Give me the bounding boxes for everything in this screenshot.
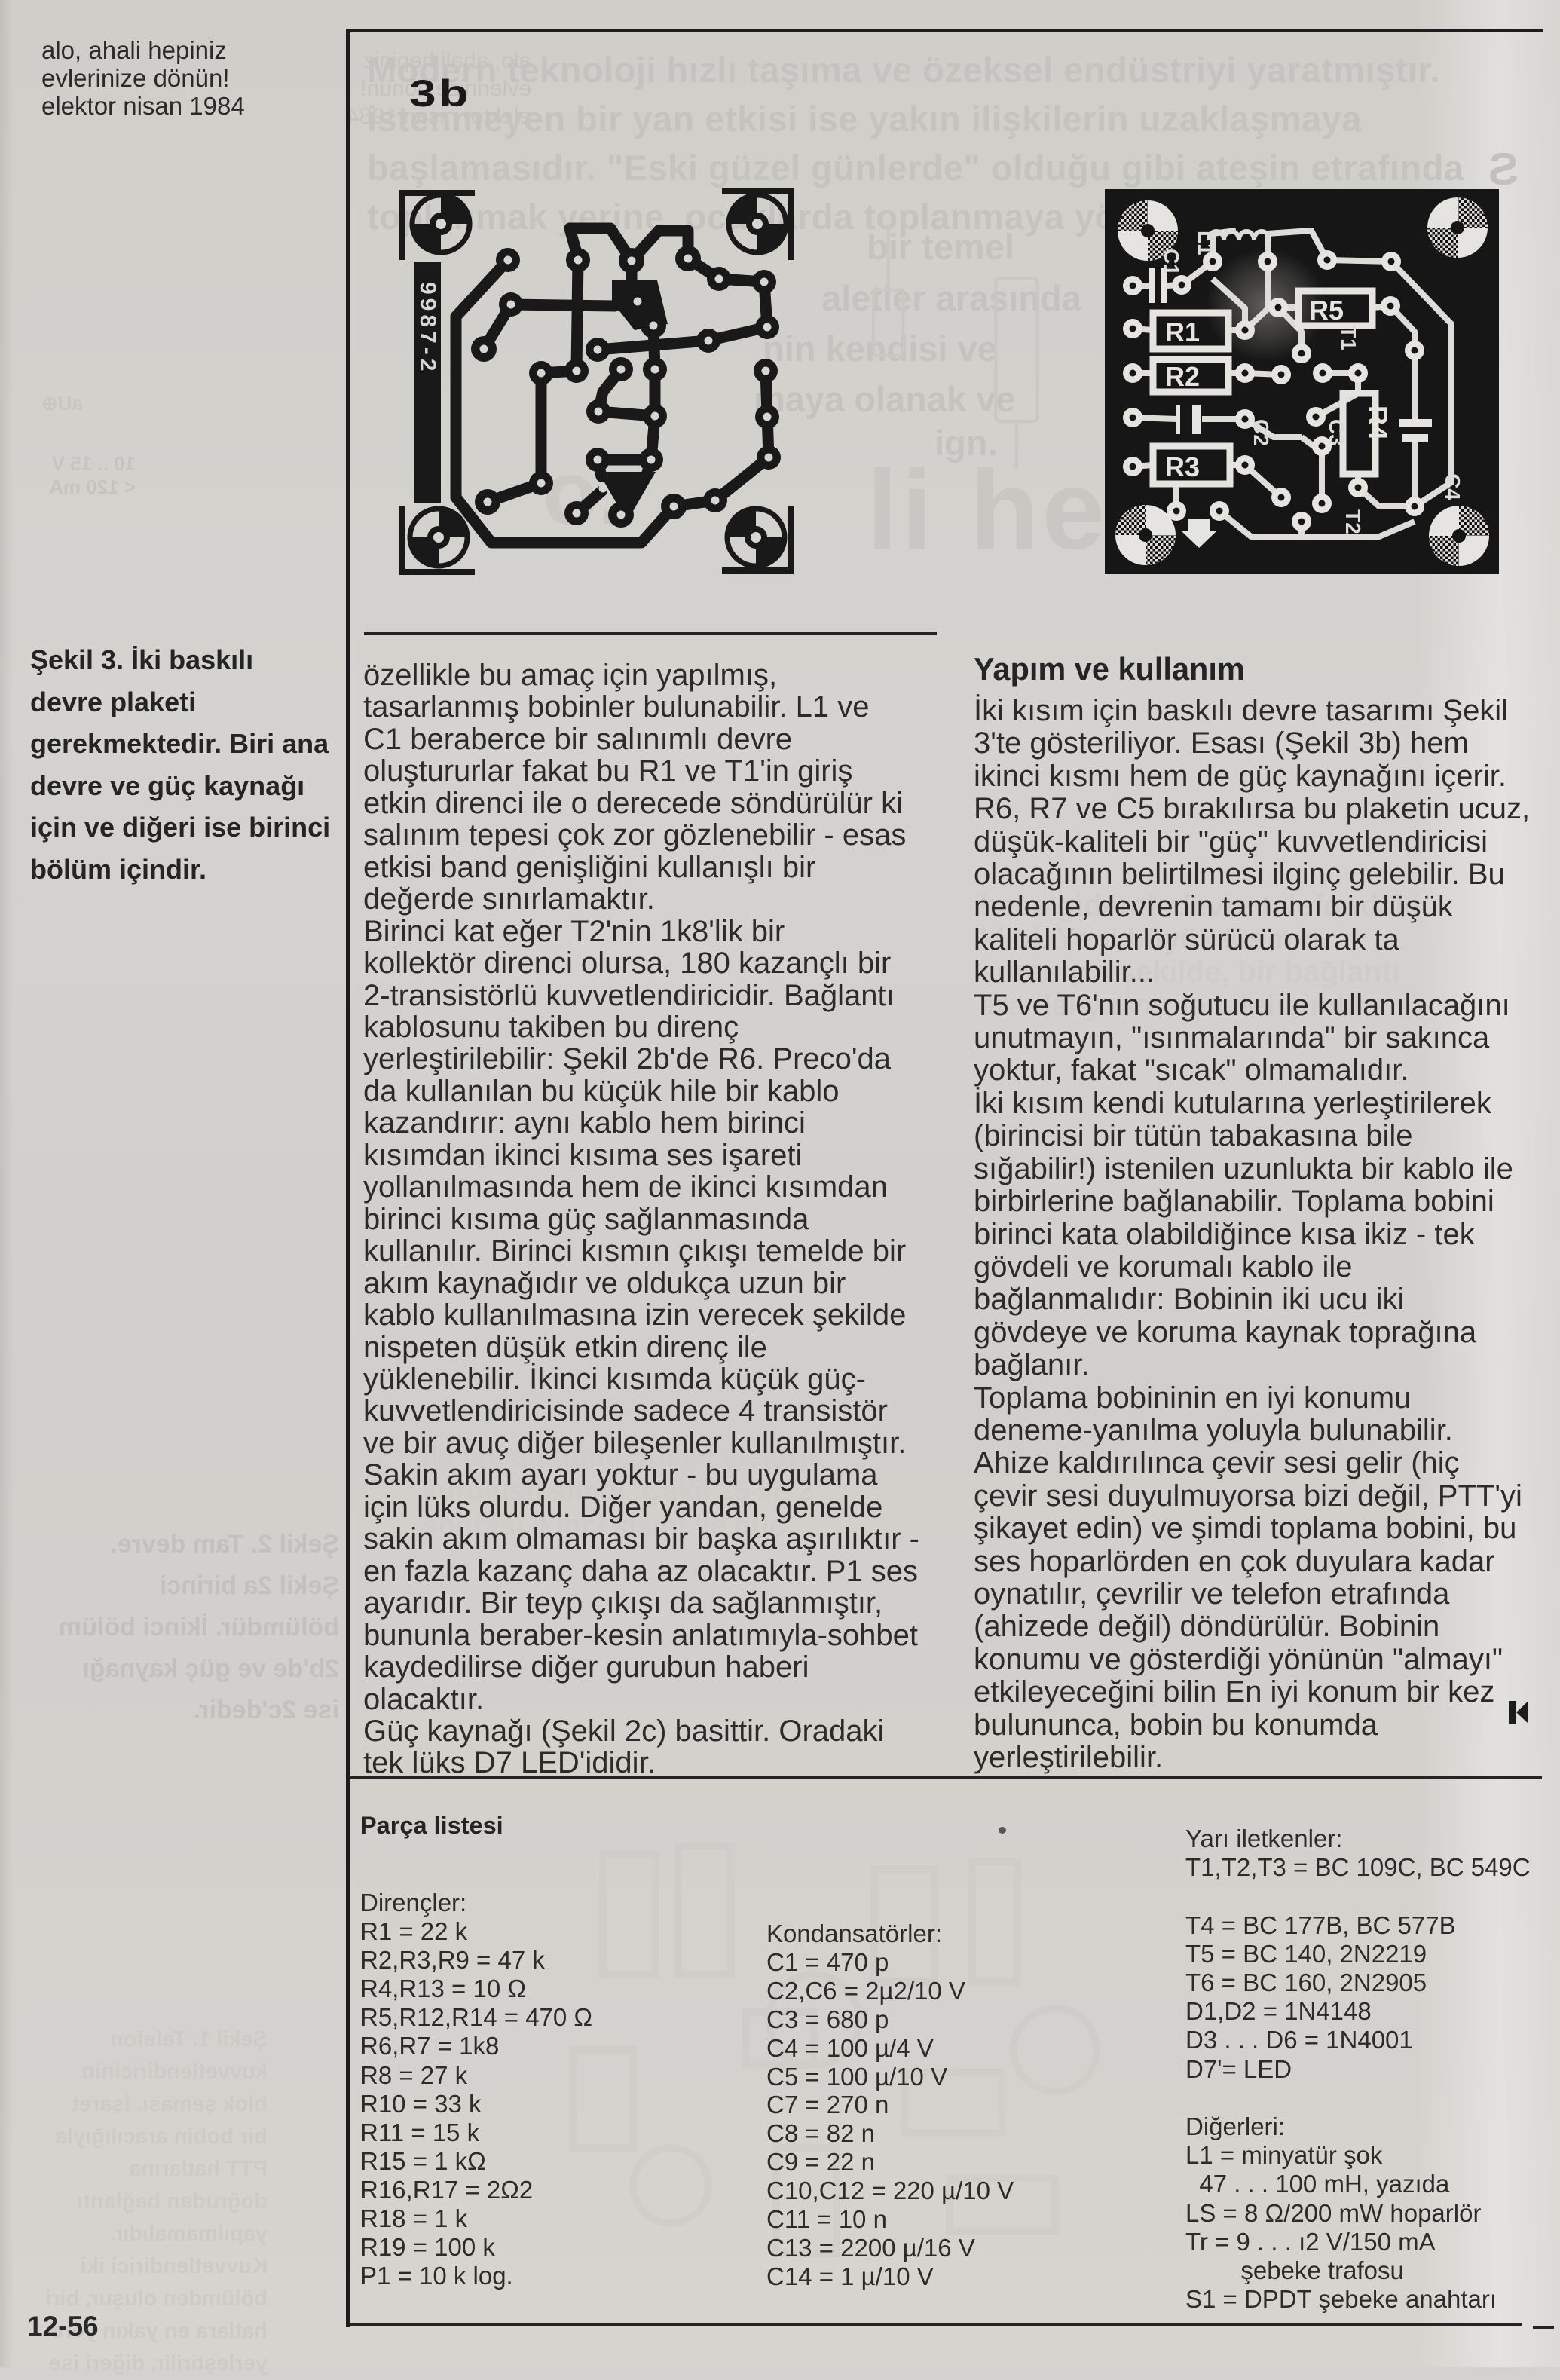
svg-text:R2: R2 [1165,361,1200,392]
svg-text:R5: R5 [1309,295,1344,326]
svg-text:C1: C1 [1160,249,1183,276]
svg-text:C4: C4 [1441,473,1464,500]
svg-text:R4: R4 [1363,405,1393,440]
svg-text:R3: R3 [1165,451,1200,482]
svg-text:9987-2: 9987-2 [415,282,440,375]
svg-text:T1: T1 [1337,326,1360,350]
svg-text:R1: R1 [1165,317,1200,347]
svg-text:T2: T2 [1341,509,1365,534]
svg-text:L1: L1 [1194,231,1217,255]
